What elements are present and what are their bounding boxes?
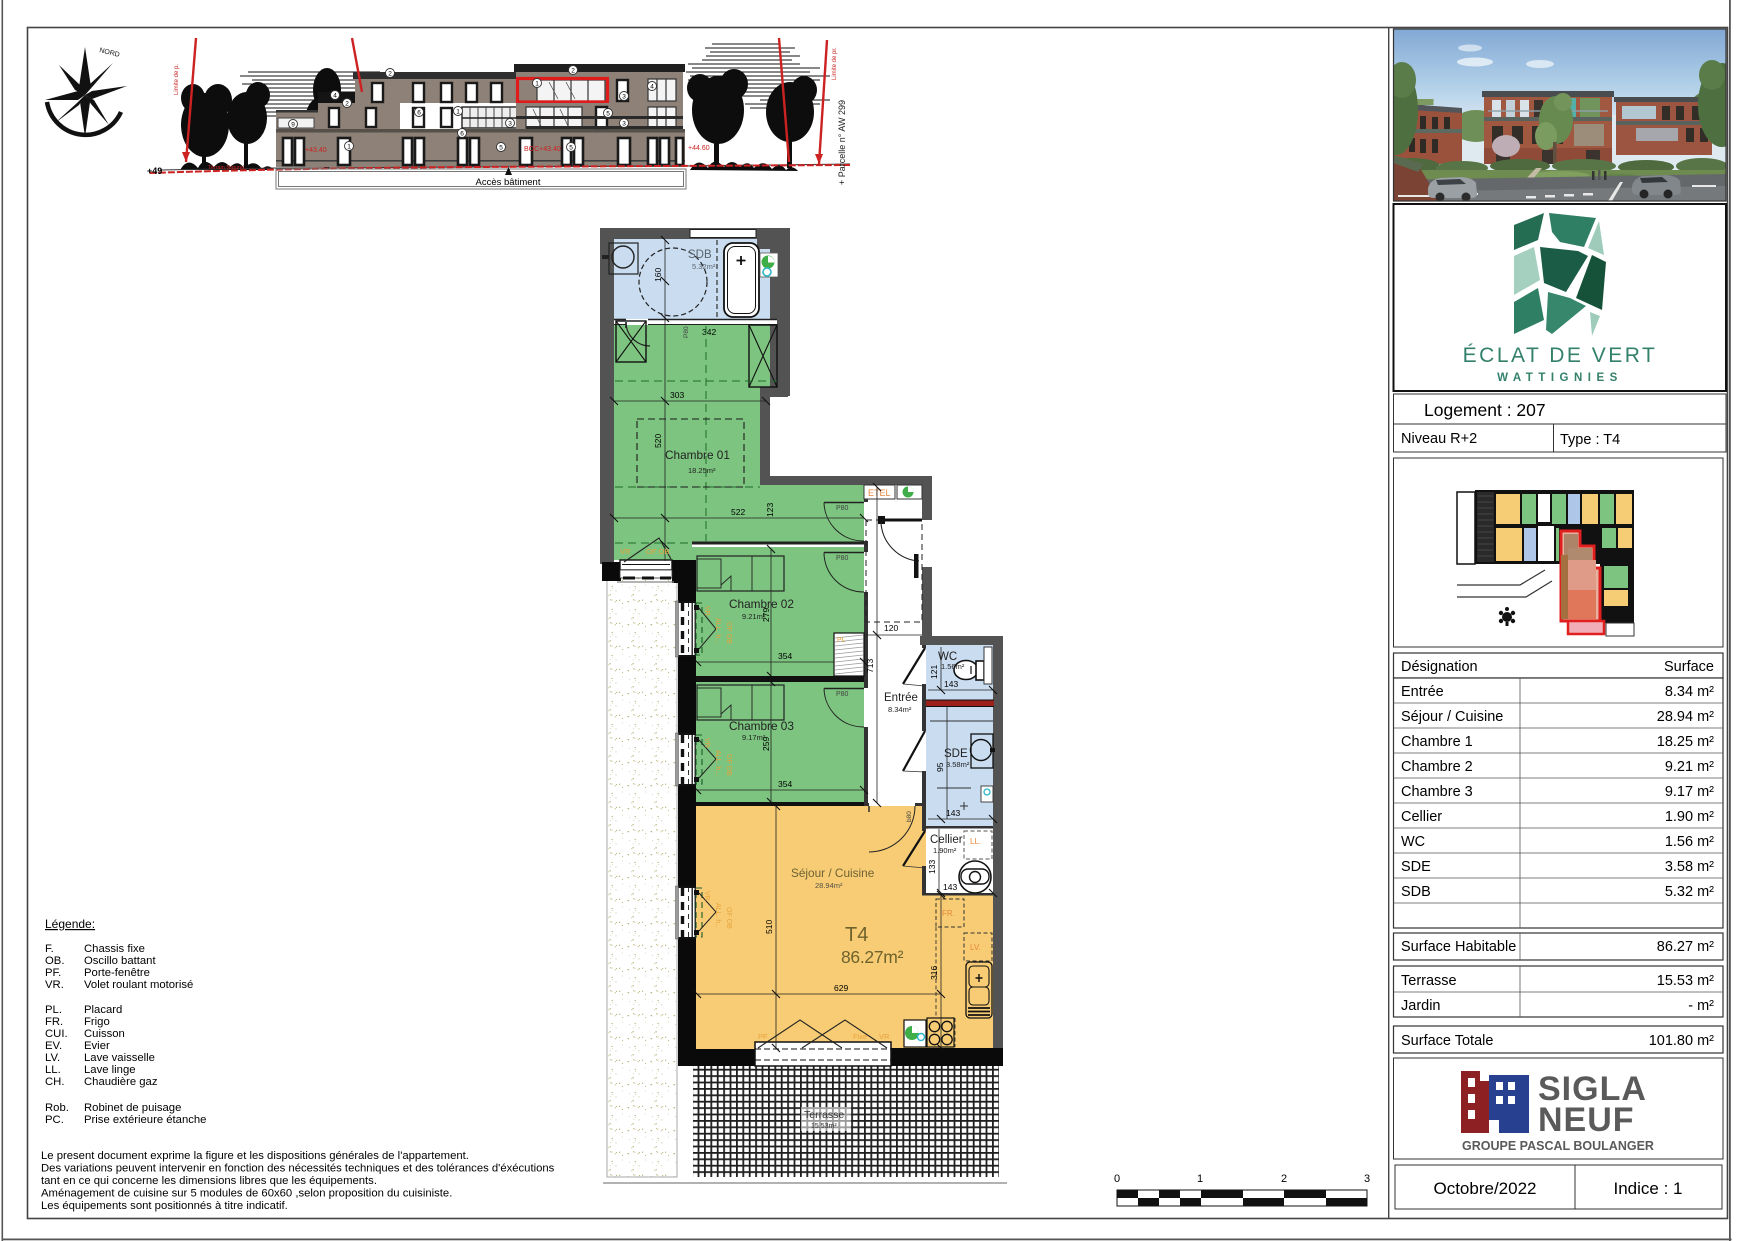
svg-text:Surface Totale: Surface Totale [1401, 1033, 1493, 1049]
svg-text:303: 303 [670, 390, 684, 400]
svg-text:P80: P80 [836, 555, 849, 562]
svg-text:1: 1 [347, 144, 351, 151]
svg-text:Cellier: Cellier [930, 834, 963, 846]
svg-text:Chambre 01: Chambre 01 [665, 448, 730, 462]
svg-text:Niveau R+2: Niveau R+2 [1401, 431, 1477, 447]
svg-text:tant en ce qui concerne les di: tant en ce qui concerne les dimensions l… [41, 1175, 377, 1187]
svg-text:0: 0 [1114, 1173, 1120, 1185]
svg-text:OF OB: OF OB [725, 754, 732, 776]
svg-text:VR: VR [703, 606, 710, 616]
svg-text:1.56 m²: 1.56 m² [1665, 834, 1714, 850]
svg-text:Placard: Placard [84, 1004, 122, 1016]
svg-text:1: 1 [1197, 1173, 1203, 1185]
svg-text:5: 5 [606, 111, 610, 118]
svg-text:6: 6 [417, 110, 421, 117]
svg-text:3.58 m²: 3.58 m² [1665, 859, 1714, 875]
svg-text:133: 133 [927, 860, 937, 874]
svg-text:8.34m²: 8.34m² [888, 705, 912, 714]
svg-text:+43.40: +43.40 [305, 147, 327, 154]
svg-text:PC.: PC. [45, 1114, 64, 1126]
svg-text:629: 629 [834, 983, 848, 993]
svg-text:Volet roulant motorisé: Volet roulant motorisé [84, 979, 193, 991]
svg-text:Octobre/2022: Octobre/2022 [1433, 1179, 1536, 1198]
svg-text:Evier: Evier [84, 1040, 110, 1052]
svg-text:+ Parcelle n° AW 299: + Parcelle n° AW 299 [837, 100, 847, 185]
svg-text:OF OB: OF OB [725, 907, 732, 929]
svg-text:342: 342 [702, 327, 716, 337]
svg-text:ALL. h...: ALL. h... [714, 750, 721, 776]
svg-text:354: 354 [778, 779, 792, 789]
svg-text:86.27 m²: 86.27 m² [1657, 939, 1714, 955]
svg-text:5: 5 [569, 145, 573, 152]
svg-text:Indice : 1: Indice : 1 [1614, 1179, 1683, 1198]
svg-text:Chambre 03: Chambre 03 [729, 719, 794, 733]
svg-text:Prise extérieure étanche: Prise extérieure étanche [84, 1114, 206, 1126]
svg-text:PF: PF [758, 1032, 768, 1041]
svg-text:Limite de p.: Limite de p. [174, 64, 180, 95]
svg-text:1: 1 [456, 109, 460, 116]
svg-text:Rob.: Rob. [45, 1102, 69, 1114]
svg-text:3: 3 [508, 121, 512, 128]
svg-text:Aménagement de cuisine sur 5 m: Aménagement de cuisine sur 5 modules de … [41, 1188, 452, 1200]
svg-text:259: 259 [761, 737, 771, 751]
svg-text:3: 3 [622, 94, 626, 101]
svg-text:Des variations peuvent interve: Des variations peuvent intervenir en fon… [41, 1163, 555, 1175]
svg-text:Entrée: Entrée [884, 692, 918, 704]
svg-text:354: 354 [778, 651, 792, 661]
svg-text:713: 713 [865, 659, 875, 673]
svg-text:SDE: SDE [944, 748, 968, 760]
svg-text:+49: +49 [147, 166, 162, 176]
svg-text:160: 160 [653, 268, 663, 282]
svg-text:123: 123 [765, 503, 775, 517]
svg-text:Chambre 2: Chambre 2 [1401, 759, 1473, 775]
svg-text:Chambre 3: Chambre 3 [1401, 784, 1473, 800]
svg-text:WC: WC [1401, 834, 1425, 850]
svg-text:5: 5 [499, 145, 503, 152]
svg-text:CUI.: CUI. [45, 1028, 68, 1040]
svg-text:3: 3 [1364, 1173, 1370, 1185]
svg-text:Lave linge: Lave linge [84, 1064, 136, 1076]
svg-text:121: 121 [929, 665, 939, 679]
svg-text:143: 143 [943, 882, 957, 892]
svg-text:Surface: Surface [1664, 659, 1714, 675]
svg-text:1.90m²: 1.90m² [933, 846, 957, 855]
svg-text:Robinet de puisage: Robinet de puisage [84, 1102, 181, 1114]
svg-text:Chassis fixe: Chassis fixe [84, 943, 145, 955]
svg-text:Accès bâtiment: Accès bâtiment [476, 177, 541, 188]
svg-text:Désignation: Désignation [1401, 659, 1478, 675]
svg-text:VR.: VR. [45, 979, 64, 991]
svg-text:5.32 m²: 5.32 m² [1665, 884, 1714, 900]
svg-text:2: 2 [388, 71, 392, 78]
svg-text:Terrasse: Terrasse [1401, 973, 1457, 989]
svg-text:SDB: SDB [1401, 884, 1431, 900]
svg-text:Les équipements sont positionn: Les équipements sont positionnés à titre… [41, 1200, 288, 1212]
svg-text:Limite de pr.: Limite de pr. [832, 47, 838, 80]
svg-text:510: 510 [764, 920, 774, 934]
svg-text:9.21 m²: 9.21 m² [1665, 759, 1714, 775]
svg-text:ALL. h...: ALL. h... [714, 903, 721, 929]
svg-text:P80: P80 [836, 505, 849, 512]
svg-text:120: 120 [884, 623, 898, 633]
svg-text:9.17 m²: 9.17 m² [1665, 784, 1714, 800]
svg-text:Chambre 1: Chambre 1 [1401, 734, 1473, 750]
svg-text:Entrée: Entrée [1401, 684, 1444, 700]
svg-text:3.58m²: 3.58m² [946, 760, 970, 769]
svg-text:Jardin: Jardin [1401, 998, 1441, 1014]
svg-text:VR: VR [879, 1032, 890, 1041]
svg-text:P80: P80 [836, 691, 849, 698]
svg-text:Logement : 207: Logement : 207 [1424, 400, 1546, 420]
svg-text:FR.: FR. [942, 909, 955, 918]
svg-text:BOC+43.40: BOC+43.40 [524, 146, 561, 153]
svg-text:LV.: LV. [970, 943, 981, 952]
svg-text:520: 520 [653, 434, 663, 448]
svg-text:PL.: PL. [45, 1004, 62, 1016]
svg-text:28.94m²: 28.94m² [815, 881, 843, 890]
svg-text:279: 279 [761, 608, 771, 622]
svg-text:LL.: LL. [970, 837, 981, 846]
svg-text:- m²: - m² [1688, 998, 1714, 1014]
svg-text:Cuisson: Cuisson [84, 1028, 125, 1040]
svg-text:OB.: OB. [45, 955, 64, 967]
svg-text:Séjour / Cuisine: Séjour / Cuisine [791, 866, 875, 880]
svg-text:143: 143 [944, 679, 958, 689]
svg-text:OF OB: OF OB [725, 622, 732, 644]
svg-text:9: 9 [291, 122, 295, 129]
svg-text:T4: T4 [845, 924, 868, 946]
svg-text:ÉCLAT DE VERT: ÉCLAT DE VERT [1463, 344, 1658, 367]
svg-text:+44.60: +44.60 [688, 145, 710, 152]
svg-text:SDE: SDE [1401, 859, 1431, 875]
svg-text:1: 1 [535, 81, 539, 88]
svg-text:143: 143 [946, 808, 960, 818]
svg-text:Porte-fenêtre: Porte-fenêtre [84, 967, 150, 979]
svg-text:VR: VR [620, 547, 631, 556]
svg-text:86.27m²: 86.27m² [841, 947, 904, 967]
svg-text:Terrasse: Terrasse [804, 1109, 844, 1121]
svg-text:Type : T4: Type : T4 [1560, 432, 1620, 448]
svg-text:Cellier: Cellier [1401, 809, 1442, 825]
svg-text:18.25 m²: 18.25 m² [1657, 734, 1714, 750]
svg-text:8.34 m²: 8.34 m² [1665, 684, 1714, 700]
svg-text:101.80 m²: 101.80 m² [1649, 1033, 1714, 1049]
svg-text:EV.: EV. [45, 1040, 62, 1052]
svg-text:18.25m²: 18.25m² [688, 466, 716, 475]
svg-text:Oscillo battant: Oscillo battant [84, 955, 156, 967]
svg-text:Lave vaisselle: Lave vaisselle [84, 1052, 155, 1064]
svg-text:CH.: CH. [45, 1076, 64, 1088]
svg-text:Chaudière gaz: Chaudière gaz [84, 1076, 158, 1088]
svg-text:1.56m²: 1.56m² [941, 662, 965, 671]
svg-text:F.: F. [45, 943, 54, 955]
svg-text:VR: VR [703, 891, 710, 901]
svg-text:5.32m²: 5.32m² [692, 262, 716, 271]
svg-text:VR: VR [703, 738, 710, 748]
svg-text:28.94 m²: 28.94 m² [1657, 709, 1714, 725]
svg-text:Séjour / Cuisine: Séjour / Cuisine [1401, 709, 1503, 725]
svg-text:15.53m²: 15.53m² [811, 1123, 837, 1130]
svg-text:NEUF: NEUF [1538, 1101, 1635, 1139]
svg-text:Légende:: Légende: [45, 917, 95, 931]
svg-text:3: 3 [622, 121, 626, 128]
svg-text:PL: PL [837, 637, 846, 644]
svg-text:b80: b80 [906, 811, 913, 822]
svg-text:4: 4 [650, 84, 654, 91]
svg-text:6: 6 [460, 131, 464, 138]
svg-text:FR.: FR. [45, 1016, 63, 1028]
svg-text:2: 2 [345, 101, 349, 108]
svg-text:Terrain Naturel: Terrain Naturel [208, 165, 244, 171]
svg-text:LL.: LL. [45, 1064, 61, 1076]
svg-text:Surface Habitable: Surface Habitable [1401, 939, 1516, 955]
svg-text:15.53 m²: 15.53 m² [1657, 973, 1714, 989]
svg-text:P80: P80 [683, 326, 690, 338]
svg-text:ALL. h...: ALL. h... [714, 618, 721, 644]
svg-text:SDB: SDB [688, 249, 712, 261]
svg-text:Frigo: Frigo [84, 1016, 110, 1028]
svg-text:4: 4 [333, 93, 337, 100]
svg-text:2: 2 [571, 68, 575, 75]
svg-text:WATTIGNIES: WATTIGNIES [1497, 372, 1623, 384]
svg-text:95: 95 [935, 762, 945, 772]
svg-text:Le present document exprime la: Le present document exprime la figure et… [41, 1150, 469, 1162]
svg-text:1.90 m²: 1.90 m² [1665, 809, 1714, 825]
svg-text:522: 522 [731, 507, 745, 517]
svg-text:Fixe: Fixe [853, 1032, 867, 1041]
svg-text:LV.: LV. [45, 1052, 60, 1064]
svg-text:2: 2 [1281, 1173, 1287, 1185]
svg-text:PF.: PF. [45, 967, 61, 979]
svg-text:316: 316 [929, 966, 939, 980]
svg-text:GROUPE PASCAL BOULANGER: GROUPE PASCAL BOULANGER [1462, 1139, 1654, 1153]
svg-text:OF OB: OF OB [646, 547, 669, 556]
